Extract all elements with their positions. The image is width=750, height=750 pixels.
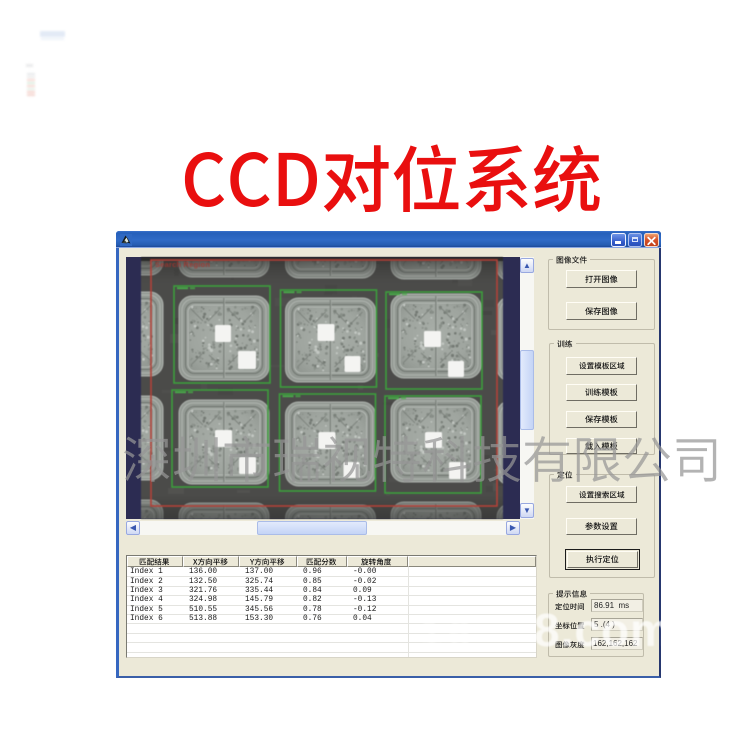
svg-text:Search Region: Search Region	[155, 260, 210, 269]
